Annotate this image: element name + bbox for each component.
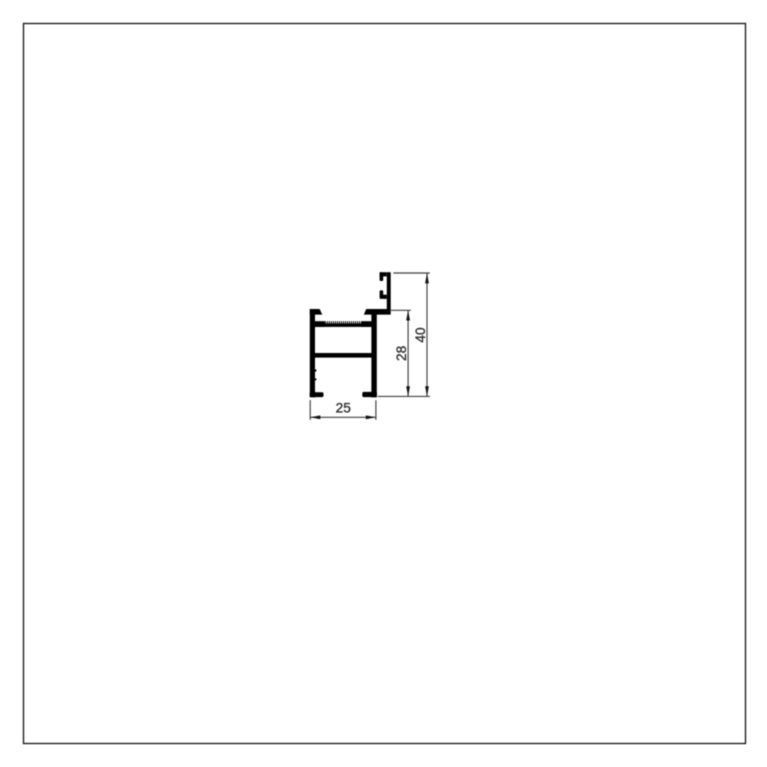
svg-text:40: 40 [413,327,428,343]
svg-text:28: 28 [394,345,409,361]
svg-text:25: 25 [336,401,352,416]
